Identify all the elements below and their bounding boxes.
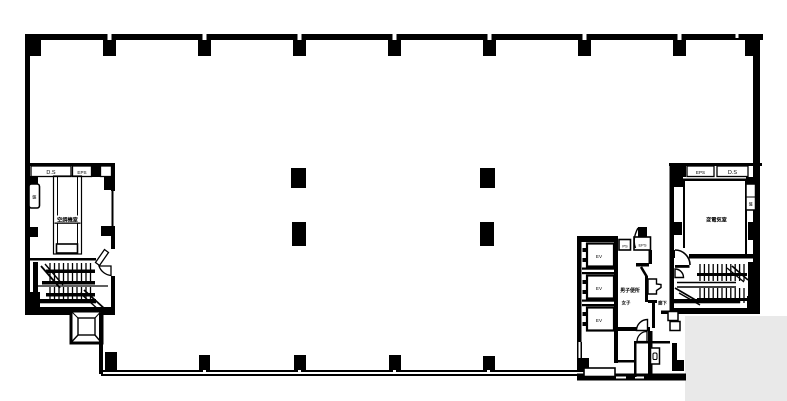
svg-text:D.S: D.S <box>728 170 738 176</box>
svg-text:PS: PS <box>622 244 628 249</box>
svg-text:変電気室: 変電気室 <box>706 216 727 224</box>
svg-text:EV: EV <box>596 318 603 323</box>
svg-text:盤: 盤 <box>749 201 753 207</box>
svg-text:EPS: EPS <box>638 243 646 248</box>
svg-text:EV: EV <box>596 286 603 291</box>
svg-text:男子便所: 男子便所 <box>620 287 640 294</box>
svg-text:女子: 女子 <box>622 300 631 307</box>
svg-text:D.S: D.S <box>46 170 56 176</box>
svg-text:廊下: 廊下 <box>658 300 667 307</box>
svg-text:EPS: EPS <box>77 170 86 175</box>
svg-text:EPS: EPS <box>696 170 705 175</box>
svg-text:EV: EV <box>596 254 603 259</box>
svg-text:空調機室: 空調機室 <box>57 216 78 224</box>
